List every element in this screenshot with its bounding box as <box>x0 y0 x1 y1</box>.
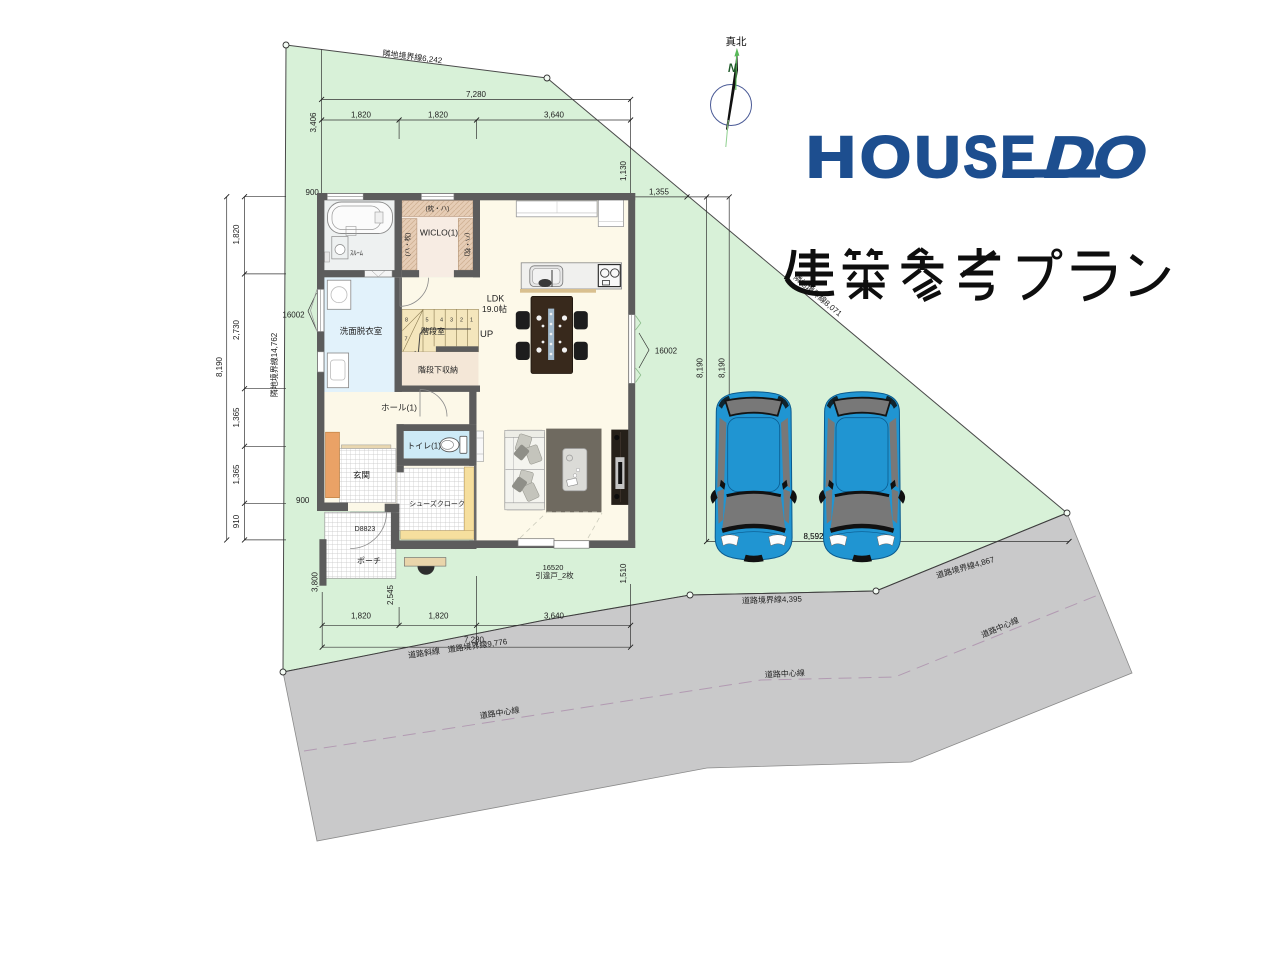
svg-text:3,640: 3,640 <box>544 111 565 120</box>
svg-text:19.0帖: 19.0帖 <box>482 304 508 314</box>
svg-text:階段下収納: 階段下収納 <box>418 365 458 375</box>
svg-text:1,365: 1,365 <box>232 407 241 428</box>
svg-text:8: 8 <box>405 318 408 324</box>
svg-text:5: 5 <box>426 318 429 324</box>
svg-text:N: N <box>728 63 737 75</box>
svg-text:シューズクローク: シューズクローク <box>409 499 465 508</box>
svg-text:ポーチ: ポーチ <box>357 557 381 566</box>
svg-text:トイレ(1): トイレ(1) <box>407 442 441 451</box>
svg-text:引違戸_2枚: 引違戸_2枚 <box>535 570 574 580</box>
svg-text:U: U <box>915 125 961 190</box>
svg-text:道路境界線4,395: 道路境界線4,395 <box>742 593 803 605</box>
svg-text:道路中心線: 道路中心線 <box>765 667 805 679</box>
svg-text:3,640: 3,640 <box>544 612 565 621</box>
svg-text:1,820: 1,820 <box>428 612 449 621</box>
svg-text:3: 3 <box>450 318 453 324</box>
svg-text:2,545: 2,545 <box>386 584 395 605</box>
svg-text:1,820: 1,820 <box>351 612 372 621</box>
svg-text:3,800: 3,800 <box>311 571 320 592</box>
svg-text:8,592: 8,592 <box>803 532 824 541</box>
svg-text:16002: 16002 <box>655 347 678 356</box>
svg-text:1,820: 1,820 <box>351 111 372 120</box>
svg-text:1,355: 1,355 <box>649 188 670 197</box>
svg-text:(ハ・枕): (ハ・枕) <box>403 233 412 257</box>
svg-text:玄関: 玄関 <box>353 470 370 480</box>
svg-text:H: H <box>806 125 856 190</box>
svg-text:階段室: 階段室 <box>421 326 445 336</box>
svg-text:ホール(1): ホール(1) <box>381 403 417 413</box>
svg-text:O: O <box>860 125 911 190</box>
svg-text:1: 1 <box>470 318 473 324</box>
svg-text:(枕・ハ): (枕・ハ) <box>425 204 449 213</box>
svg-text:1,820: 1,820 <box>428 111 449 120</box>
svg-text:隣地境界線14,762: 隣地境界線14,762 <box>269 332 279 397</box>
svg-text:7,280: 7,280 <box>466 90 487 99</box>
svg-text:16002: 16002 <box>282 311 305 320</box>
svg-text:2: 2 <box>460 318 463 324</box>
svg-text:LDK: LDK <box>487 294 505 304</box>
svg-text:8,190: 8,190 <box>215 356 224 377</box>
svg-text:1,365: 1,365 <box>232 464 241 485</box>
svg-text:910: 910 <box>232 514 241 528</box>
svg-text:UP: UP <box>480 329 493 340</box>
svg-text:洗面脱衣室: 洗面脱衣室 <box>340 326 383 336</box>
svg-text:3,406: 3,406 <box>309 112 318 133</box>
svg-text:D8823: D8823 <box>355 526 376 533</box>
svg-text:1,510: 1,510 <box>619 563 628 584</box>
svg-text:2,730: 2,730 <box>232 319 241 340</box>
svg-text:8,190: 8,190 <box>696 357 705 378</box>
svg-text:1,820: 1,820 <box>232 224 241 245</box>
svg-text:4: 4 <box>440 318 443 324</box>
svg-text:(ハ・枕): (ハ・枕) <box>464 233 473 257</box>
svg-text:8,190: 8,190 <box>718 357 727 378</box>
svg-text:DO: DO <box>1038 125 1155 190</box>
svg-text:7: 7 <box>405 337 408 343</box>
svg-text:S: S <box>964 125 998 190</box>
svg-text:900: 900 <box>296 496 310 505</box>
svg-text:E: E <box>1001 125 1036 190</box>
svg-text:WICLO(1): WICLO(1) <box>420 228 458 238</box>
svg-text:ｽﾙｰﾑ: ｽﾙｰﾑ <box>350 249 364 257</box>
svg-text:真北: 真北 <box>726 35 747 48</box>
svg-text:1,130: 1,130 <box>619 160 628 181</box>
